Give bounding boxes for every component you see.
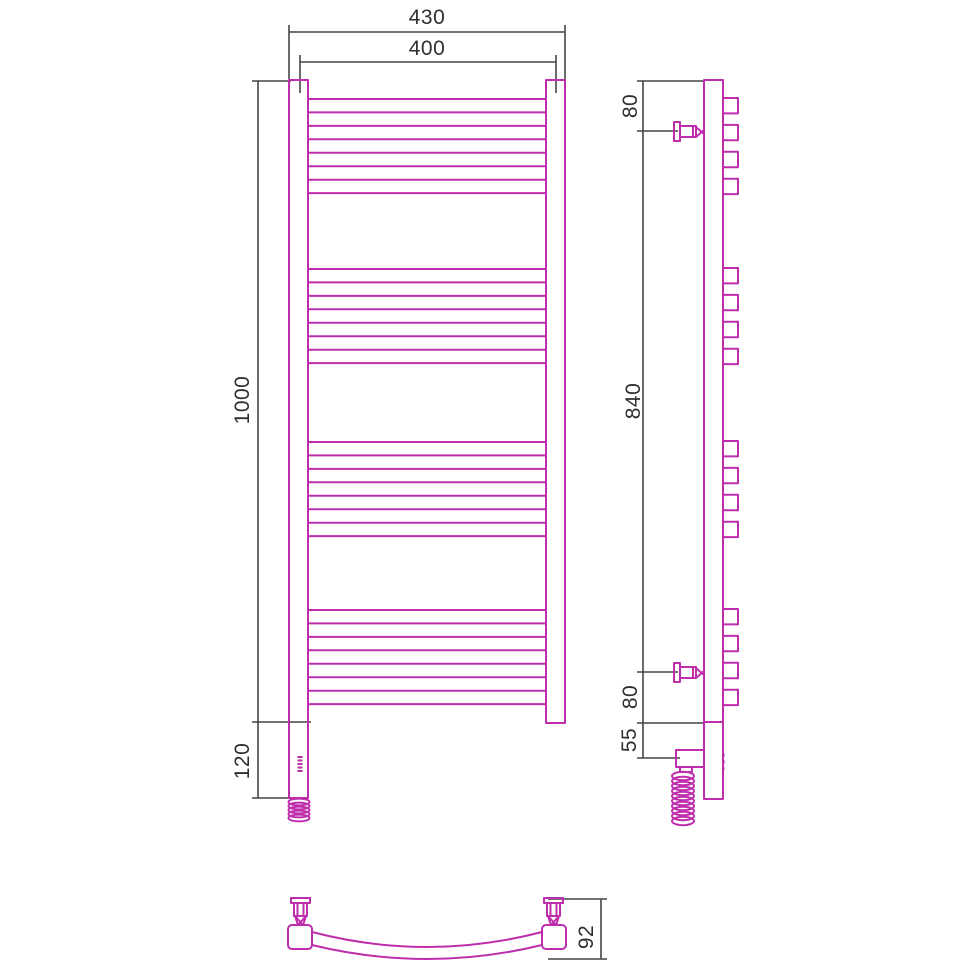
side-view: 80 840 80 55 [618,80,738,825]
rung [308,496,546,509]
rung [308,664,546,677]
wall-bracket-plan-left [291,898,310,925]
rung-group-4 [308,610,546,704]
element-housing [676,750,704,767]
rung [308,99,546,112]
rung [308,180,546,193]
rung [308,350,546,363]
rung [308,442,546,455]
drawing-canvas: 430 400 1000 120 [0,0,970,970]
dim-label-bracket-span: 840 [622,383,645,420]
right-tube-section [542,925,566,949]
side-dimension-lines [637,81,705,758]
rung-group-2 [308,269,546,363]
rung [308,469,546,482]
wall-bracket-plan-right [544,898,563,925]
front-product [289,80,566,821]
rung [308,610,546,623]
dim-label-depth: 92 [575,925,598,949]
dim-label-overall-width: 430 [409,6,446,29]
rung-group-1 [308,99,546,193]
left-tube-section [288,925,312,949]
bottom-product [288,898,566,959]
dim-label-lower-section: 120 [231,743,254,780]
dim-label-height: 1000 [231,376,254,425]
rung [308,153,546,166]
dim-label-bottom-bracket-offset: 80 [619,685,642,709]
heating-element [672,750,724,825]
rung [308,637,546,650]
power-cable-coil-front [289,799,310,822]
wall-bracket-top [674,122,704,141]
rung [308,691,546,704]
technical-drawing: 430 400 1000 120 [0,0,970,970]
rung [308,296,546,309]
rung [308,323,546,336]
rung [308,126,546,139]
left-riser-tube [289,80,308,798]
rung [308,269,546,282]
front-view: 430 400 1000 120 [231,6,565,821]
wall-bracket-bottom [674,663,704,682]
front-dimension-lines [252,25,565,798]
side-product [672,80,738,825]
dim-label-top-bracket-offset: 80 [619,94,642,118]
bottom-view: 92 [288,898,607,959]
heater-cartridge-dots [298,756,303,772]
riser-lower-profile [704,722,723,799]
right-riser-tube [546,80,565,723]
dim-label-outlet-offset: 55 [618,728,641,752]
rung-ends [723,98,738,705]
riser-profile [704,80,723,722]
dim-label-axis-width: 400 [409,37,446,60]
power-cable-coil-side [672,772,694,825]
rung-group-3 [308,442,546,536]
rung [308,523,546,536]
curved-rung-outer [312,932,542,947]
